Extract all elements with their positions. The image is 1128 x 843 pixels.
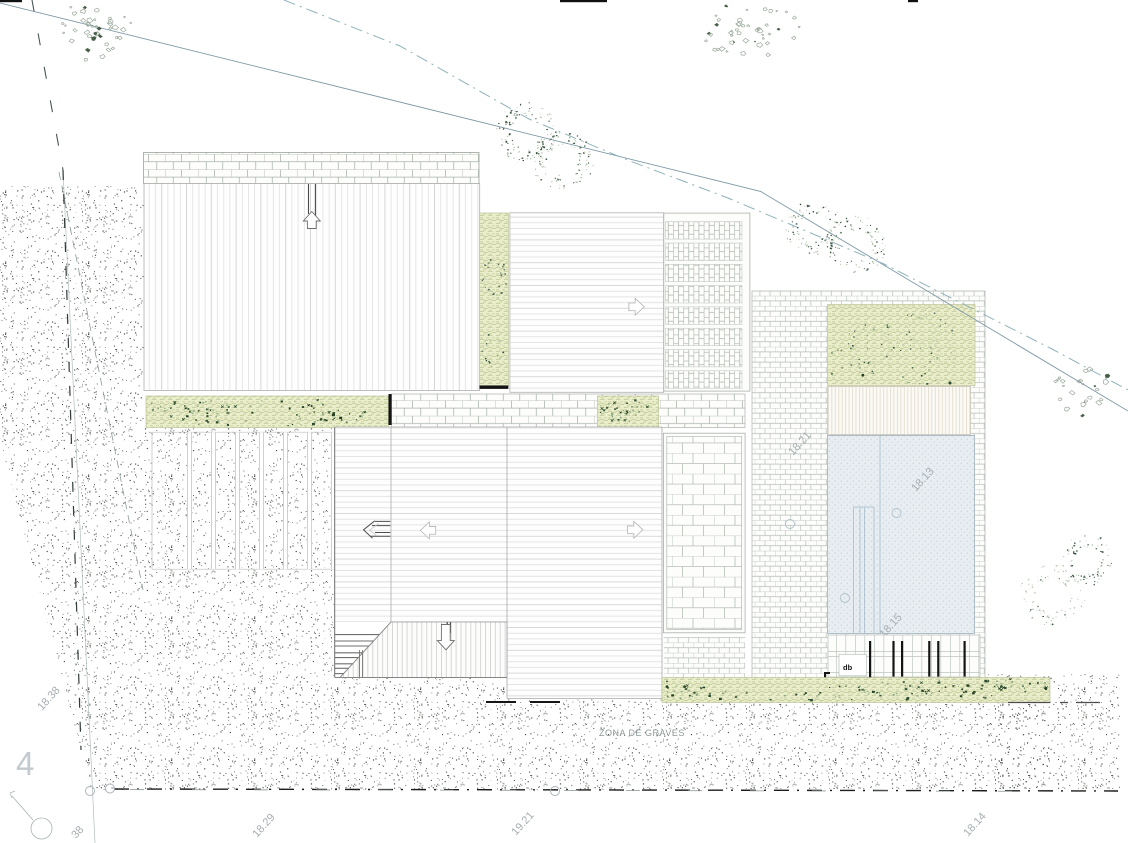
svg-text:4: 4 [16, 745, 34, 782]
svg-text:ZONA DE GRAVES: ZONA DE GRAVES [599, 728, 685, 738]
svg-text:db: db [843, 663, 853, 672]
